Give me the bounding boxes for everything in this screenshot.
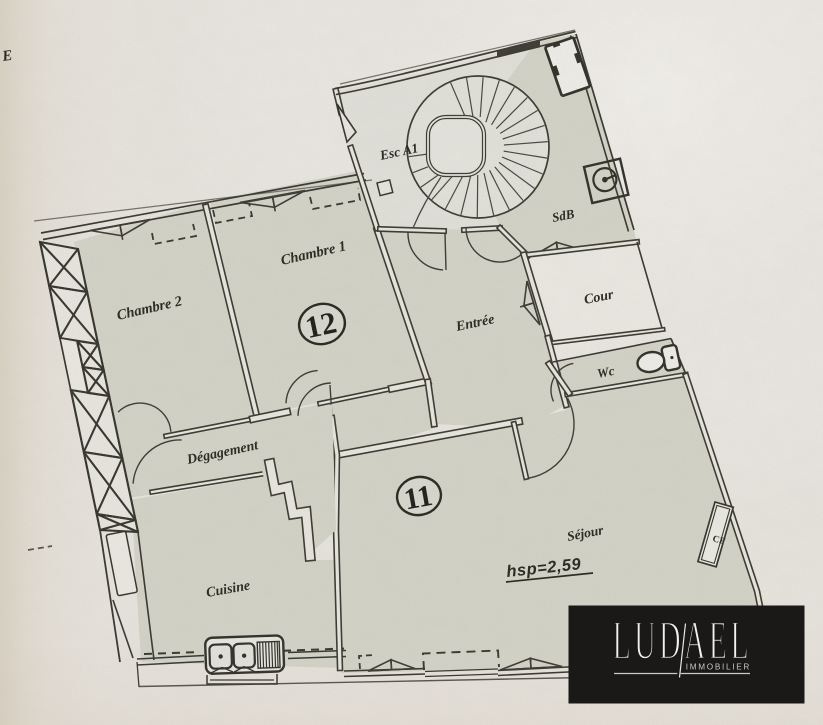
svg-text:IMMOBILIER: IMMOBILIER <box>686 663 751 672</box>
